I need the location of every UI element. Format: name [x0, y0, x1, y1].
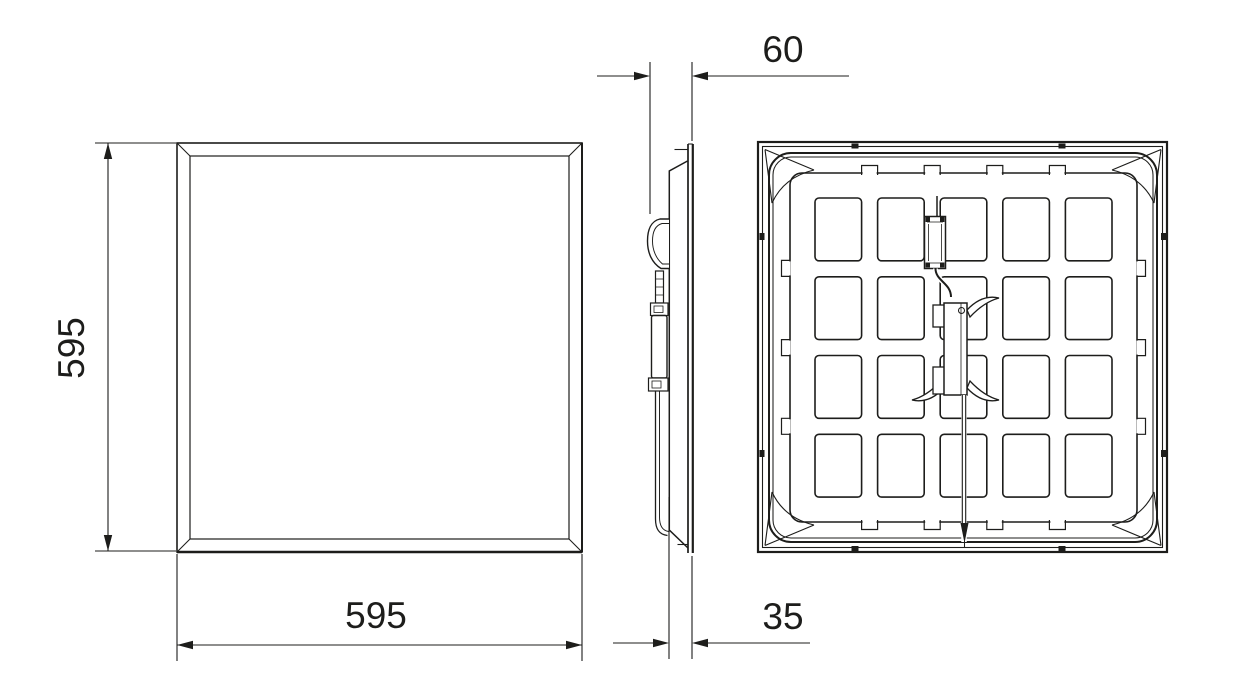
frame-clip-tick: [1059, 546, 1066, 551]
driver-step-top: [933, 305, 945, 327]
front-bevel-top-right: [569, 143, 582, 156]
grid-tab: [863, 521, 877, 530]
grid-cutout: [878, 198, 925, 261]
arrowhead-up: [104, 143, 112, 159]
dim-label-depth-panel: 35: [762, 596, 803, 637]
arrowhead-left: [177, 641, 193, 649]
grid-tab: [1137, 341, 1146, 355]
grid-cutout: [1065, 356, 1112, 419]
grid-tab: [782, 419, 791, 433]
grid-cutout: [815, 198, 862, 261]
grid-cutout: [815, 277, 862, 340]
dim-front-width: 595: [177, 554, 582, 661]
front-panel-inner-edge: [190, 156, 569, 539]
frame-clip-tick: [1161, 450, 1166, 457]
grid-tab: [863, 166, 877, 175]
grid-cutout: [1065, 277, 1112, 340]
grid-cutout: [878, 277, 925, 340]
side-cable-inner: [660, 391, 669, 532]
rear-view: [758, 142, 1167, 552]
front-bevel-bottom-right: [569, 539, 582, 552]
dim-depth-panel: 35: [613, 497, 810, 659]
grid-tab: [1137, 419, 1146, 433]
grid-cutout: [940, 198, 987, 261]
arrowhead-left: [692, 72, 708, 80]
grid-tab: [782, 341, 791, 355]
grid-cutout: [1003, 277, 1050, 340]
grid-tab: [988, 521, 1002, 530]
technical-drawing: 595 595: [0, 0, 1256, 700]
frame-clip-tick: [852, 546, 859, 551]
driver-bracket: [944, 303, 967, 395]
front-view: [177, 143, 582, 552]
driver-wing-top-right: [967, 297, 999, 317]
grid-cutout: [815, 434, 862, 497]
terminal-block: [925, 217, 946, 269]
dim-label-front-width: 595: [345, 595, 407, 636]
grid-cutout: [1065, 198, 1112, 261]
driver-wing-bottom-right: [967, 381, 999, 401]
arrowhead-left: [692, 639, 708, 647]
terminal-block-contact: [940, 263, 945, 268]
side-driver-box: [652, 316, 668, 379]
side-bracket-top: [651, 303, 669, 316]
arrowhead-right: [566, 641, 582, 649]
dim-label-front-height: 595: [51, 317, 92, 379]
frame-clip-tick: [1161, 233, 1166, 240]
side-view: [648, 144, 693, 553]
side-back-profile: [669, 161, 688, 548]
grid-cutout: [1003, 356, 1050, 419]
grid-cutout: [1003, 434, 1050, 497]
grid-tab: [1137, 261, 1146, 275]
terminal-block-contact: [926, 263, 931, 268]
grid-tab: [988, 166, 1002, 175]
grid-tab: [925, 166, 939, 175]
grid-cutout: [1003, 198, 1050, 261]
frame-clip-tick: [1059, 144, 1066, 149]
grid-cutout: [878, 356, 925, 419]
driver-step-bottom: [933, 367, 945, 394]
frame-clip-tick: [760, 233, 765, 240]
grid-tab: [925, 521, 939, 530]
terminal-block-contact: [926, 217, 931, 222]
grid-cutout: [815, 356, 862, 419]
front-panel-outer-edge: [177, 143, 582, 552]
dimension-drawing-canvas: 595 595: [0, 0, 1256, 700]
grid-tab: [782, 261, 791, 275]
grid-tab: [1050, 521, 1064, 530]
side-mounting-clip: [648, 219, 670, 269]
front-bevel-top-left: [177, 143, 190, 156]
arrowhead-down: [104, 535, 112, 551]
dim-label-depth-overall: 60: [762, 29, 803, 70]
terminal-block-contact: [940, 217, 945, 222]
dim-front-height: 595: [51, 143, 176, 551]
front-bevel-bottom-left: [177, 539, 190, 552]
grid-tab: [1050, 166, 1064, 175]
arrowhead-right: [653, 639, 669, 647]
grid-cutout: [1065, 434, 1112, 497]
grid-cutout: [878, 434, 925, 497]
dim-depth-overall: 60: [597, 29, 849, 214]
side-cable-outer: [656, 391, 668, 536]
arrowhead-right: [634, 72, 650, 80]
side-bracket-bottom: [649, 378, 669, 391]
frame-clip-tick: [760, 450, 765, 457]
frame-clip-tick: [852, 144, 859, 149]
